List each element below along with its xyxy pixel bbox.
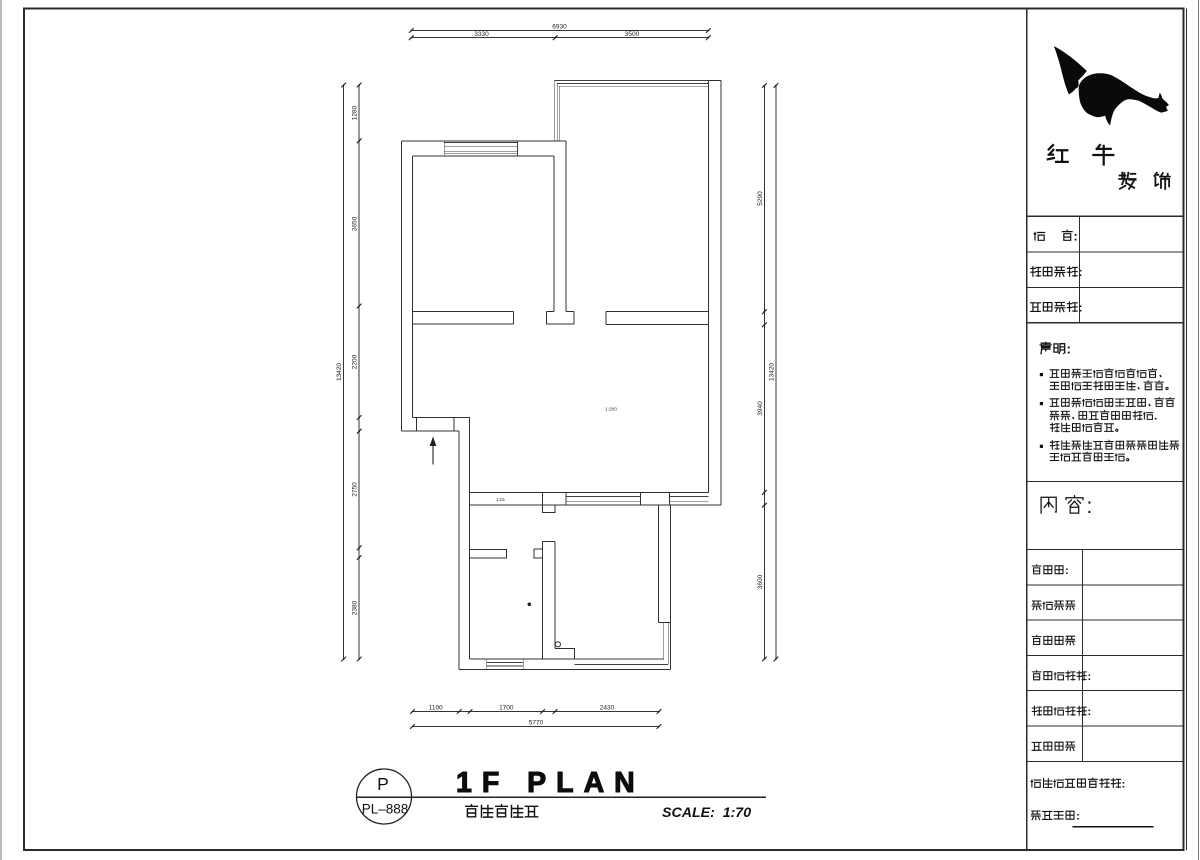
svg-text:5290: 5290 <box>757 191 764 206</box>
svg-text:3650: 3650 <box>352 216 359 231</box>
svg-text::: : <box>1067 342 1072 357</box>
svg-text:3500: 3500 <box>625 31 640 38</box>
svg-text:3940: 3940 <box>757 401 764 416</box>
svg-text:2430: 2430 <box>600 704 615 711</box>
svg-text::: : <box>1122 778 1126 790</box>
svg-text:3330: 3330 <box>474 31 489 38</box>
svg-text:6930: 6930 <box>552 23 567 30</box>
svg-text:P: P <box>377 774 389 794</box>
svg-text::: : <box>1088 706 1092 718</box>
svg-text::: : <box>1088 671 1092 683</box>
svg-text::: : <box>1076 811 1080 823</box>
svg-text:SCALE: 1:70: SCALE: 1:70 <box>662 805 751 821</box>
svg-text:.: . <box>1154 411 1157 423</box>
svg-text:2750: 2750 <box>352 482 359 497</box>
svg-text:2200: 2200 <box>352 354 359 369</box>
svg-text:3600: 3600 <box>757 574 764 589</box>
svg-text:2380: 2380 <box>352 600 359 615</box>
svg-text:13420: 13420 <box>768 363 775 381</box>
svg-text::: : <box>1079 265 1083 279</box>
svg-text:1:200: 1:200 <box>605 407 617 413</box>
svg-text:PL–888: PL–888 <box>362 802 409 817</box>
svg-text:1700: 1700 <box>499 704 514 711</box>
svg-text::: : <box>1079 301 1083 315</box>
svg-text:1280: 1280 <box>352 105 359 120</box>
svg-text:13420: 13420 <box>336 363 343 381</box>
svg-text:1F PLAN: 1F PLAN <box>456 767 645 799</box>
svg-text::: : <box>1065 565 1069 577</box>
svg-text::: : <box>1087 495 1093 518</box>
svg-text:1100: 1100 <box>429 704 443 711</box>
svg-text::: : <box>1074 230 1078 244</box>
svg-text:5770: 5770 <box>529 719 544 726</box>
svg-text:1:01: 1:01 <box>496 497 506 503</box>
